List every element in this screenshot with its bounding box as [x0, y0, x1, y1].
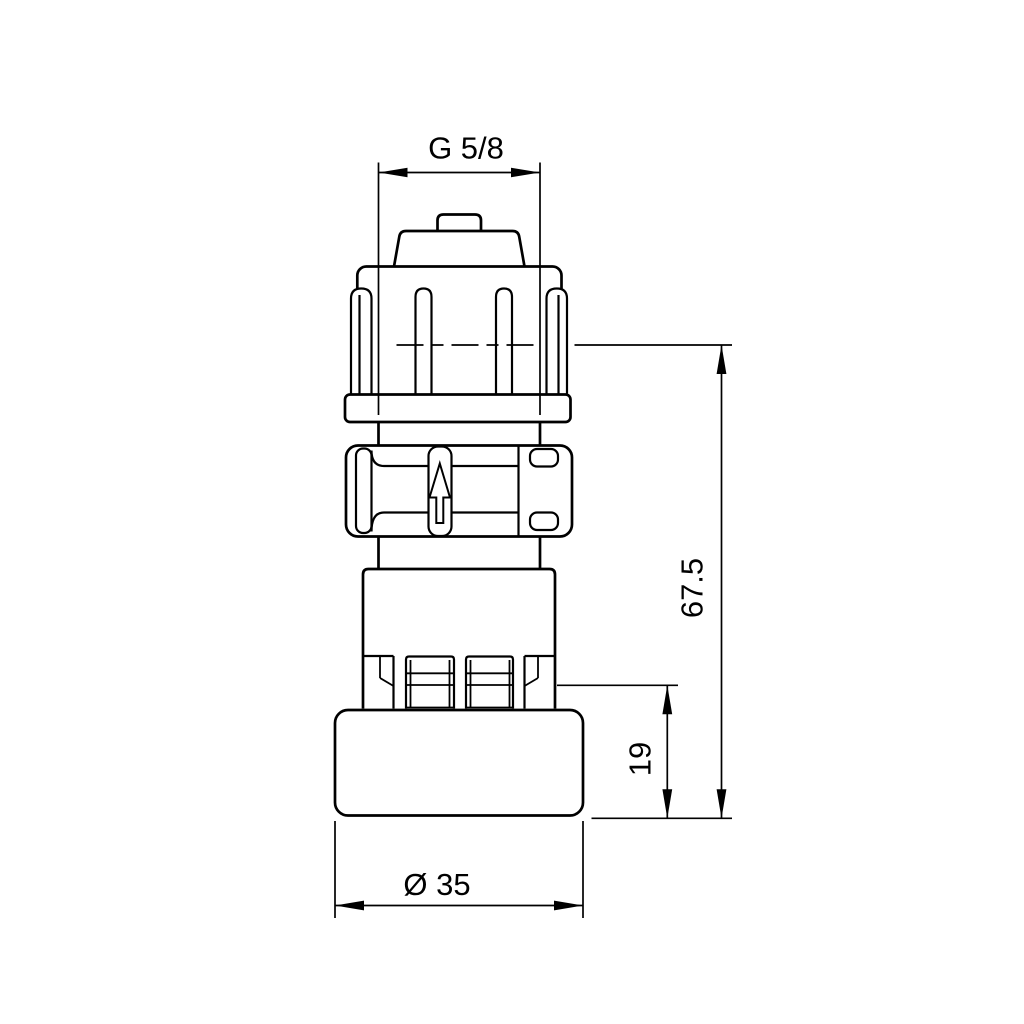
tooth-3 [466, 657, 513, 709]
drawing-sheet: G 5/8 67.5 19 Ø 35 [0, 0, 1024, 1024]
cap-groove-left [416, 289, 432, 395]
cap-top [394, 231, 525, 267]
cap-tab-right [547, 289, 568, 394]
cap-button [438, 215, 482, 232]
arrowhead-up-icon [717, 345, 727, 374]
arrowhead-down-icon [717, 789, 727, 818]
overall-height-dimension: 67.5 [592, 345, 733, 818]
overall-height-dimension-label: 67.5 [675, 558, 710, 618]
arrowhead-left-icon [335, 901, 364, 911]
arrowhead-right-icon [554, 901, 583, 911]
thread-dimension-label: G 5/8 [428, 131, 504, 166]
fitting-part [335, 215, 583, 816]
cap-tab-left [351, 289, 372, 394]
base-diameter-dimension-label: Ø 35 [403, 867, 470, 902]
arrowhead-down-icon [662, 789, 672, 818]
cap-groove-right [496, 289, 512, 395]
arrowhead-up-icon [662, 685, 672, 714]
tooth-2 [406, 657, 454, 709]
knurled-cap [357, 267, 561, 396]
technical-drawing-canvas: G 5/8 67.5 19 Ø 35 [0, 0, 1024, 1024]
body-block [363, 569, 555, 709]
base-diameter-dimension: Ø 35 [335, 821, 583, 918]
ring-notch-bottom-right [530, 513, 558, 531]
arrowhead-right-icon [511, 168, 540, 178]
ring-notch-top-right [530, 449, 558, 467]
collar-height-dimension-label: 19 [623, 742, 658, 776]
base-cylinder [335, 710, 583, 816]
arrowhead-left-icon [379, 168, 408, 178]
ring-bar-left [356, 449, 372, 534]
